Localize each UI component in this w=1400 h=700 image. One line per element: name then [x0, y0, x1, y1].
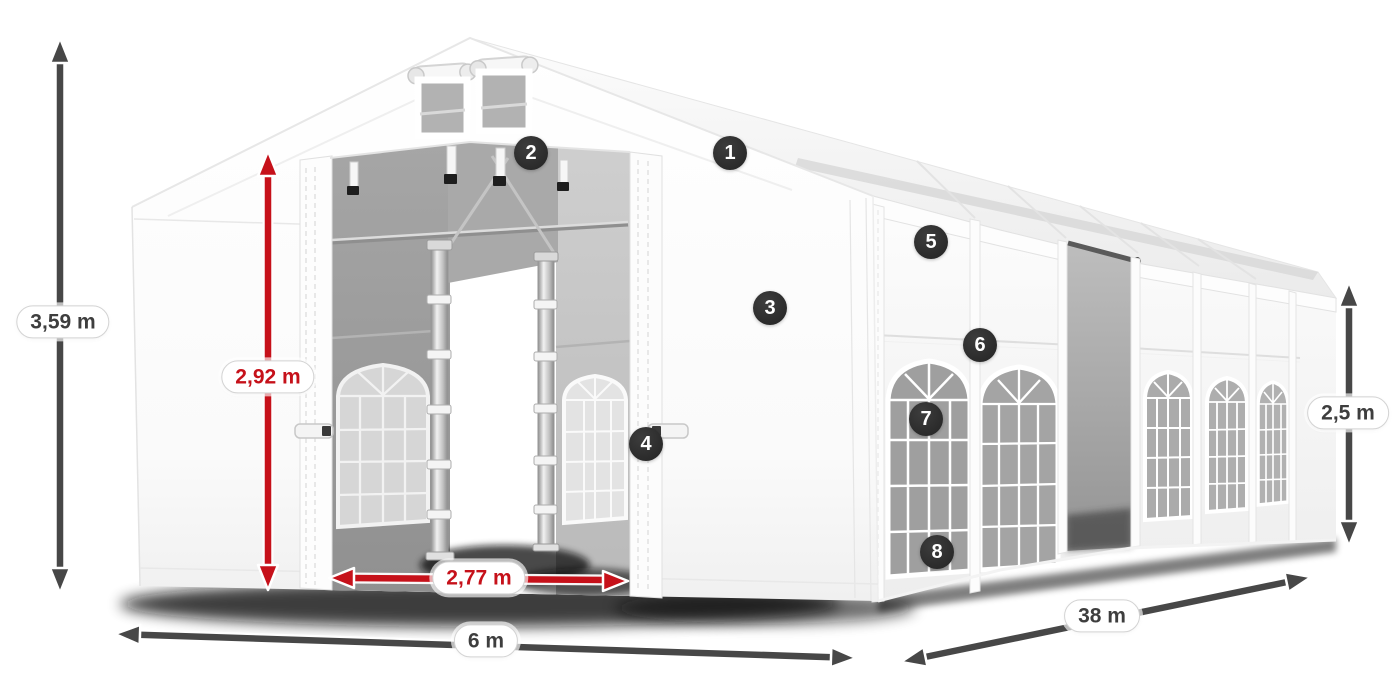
side-window-2	[980, 367, 1058, 570]
side-entrance-opening	[1066, 243, 1141, 551]
dimension-label-tent-length: 38 m	[1064, 599, 1140, 632]
callout-badge-3: 3	[753, 291, 787, 325]
vent-window-right	[479, 72, 529, 131]
callout-badge-2: 2	[514, 136, 548, 170]
callout-badge-4: 4	[629, 427, 663, 461]
dimension-label-entrance-height: 2,92 m	[221, 360, 314, 393]
dimension-label-tent-width: 6 m	[454, 624, 518, 657]
dimension-label-entrance-width: 2,77 m	[432, 561, 525, 594]
side-window-5	[1258, 382, 1288, 505]
side-window-4	[1207, 378, 1247, 512]
callout-badge-6: 6	[963, 328, 997, 362]
dimension-label-side-height: 2,5 m	[1307, 396, 1389, 429]
dimension-label-total-height: 3,59 m	[16, 305, 109, 338]
side-window-3	[1145, 372, 1192, 520]
tent-dimension-diagram: 3,59 m 2,92 m 2,77 m 6 m 38 m 2,5 m 1234…	[0, 0, 1400, 700]
callout-badge-5: 5	[914, 225, 948, 259]
door-handle-left	[295, 424, 333, 438]
inner-window-right	[564, 376, 626, 523]
vent-window-left	[418, 80, 467, 136]
front-entrance-interior	[328, 138, 655, 600]
inner-window-left	[338, 365, 428, 527]
callout-badge-8: 8	[920, 535, 954, 569]
callout-badge-7: 7	[909, 402, 943, 436]
right-inner-door-panel	[556, 140, 632, 598]
tent-illustration	[0, 0, 1400, 700]
callout-badge-1: 1	[713, 136, 747, 170]
